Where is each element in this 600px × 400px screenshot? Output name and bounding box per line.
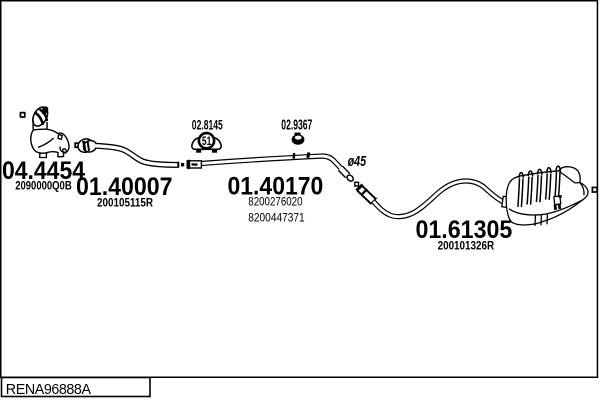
svg-text:2090000Q0B: 2090000Q0B [15, 178, 72, 192]
svg-text:ø45: ø45 [348, 154, 367, 170]
svg-text:8200447371: 8200447371 [248, 210, 304, 224]
svg-text:02.8145: 02.8145 [192, 117, 223, 133]
svg-text:RENA96888A: RENA96888A [6, 382, 92, 398]
svg-text:200101326R: 200101326R [438, 238, 495, 252]
svg-text:51: 51 [202, 136, 212, 148]
svg-text:02.9367: 02.9367 [281, 117, 312, 133]
svg-text:200105115R: 200105115R [97, 196, 153, 210]
svg-text:8200276020: 8200276020 [248, 195, 303, 209]
